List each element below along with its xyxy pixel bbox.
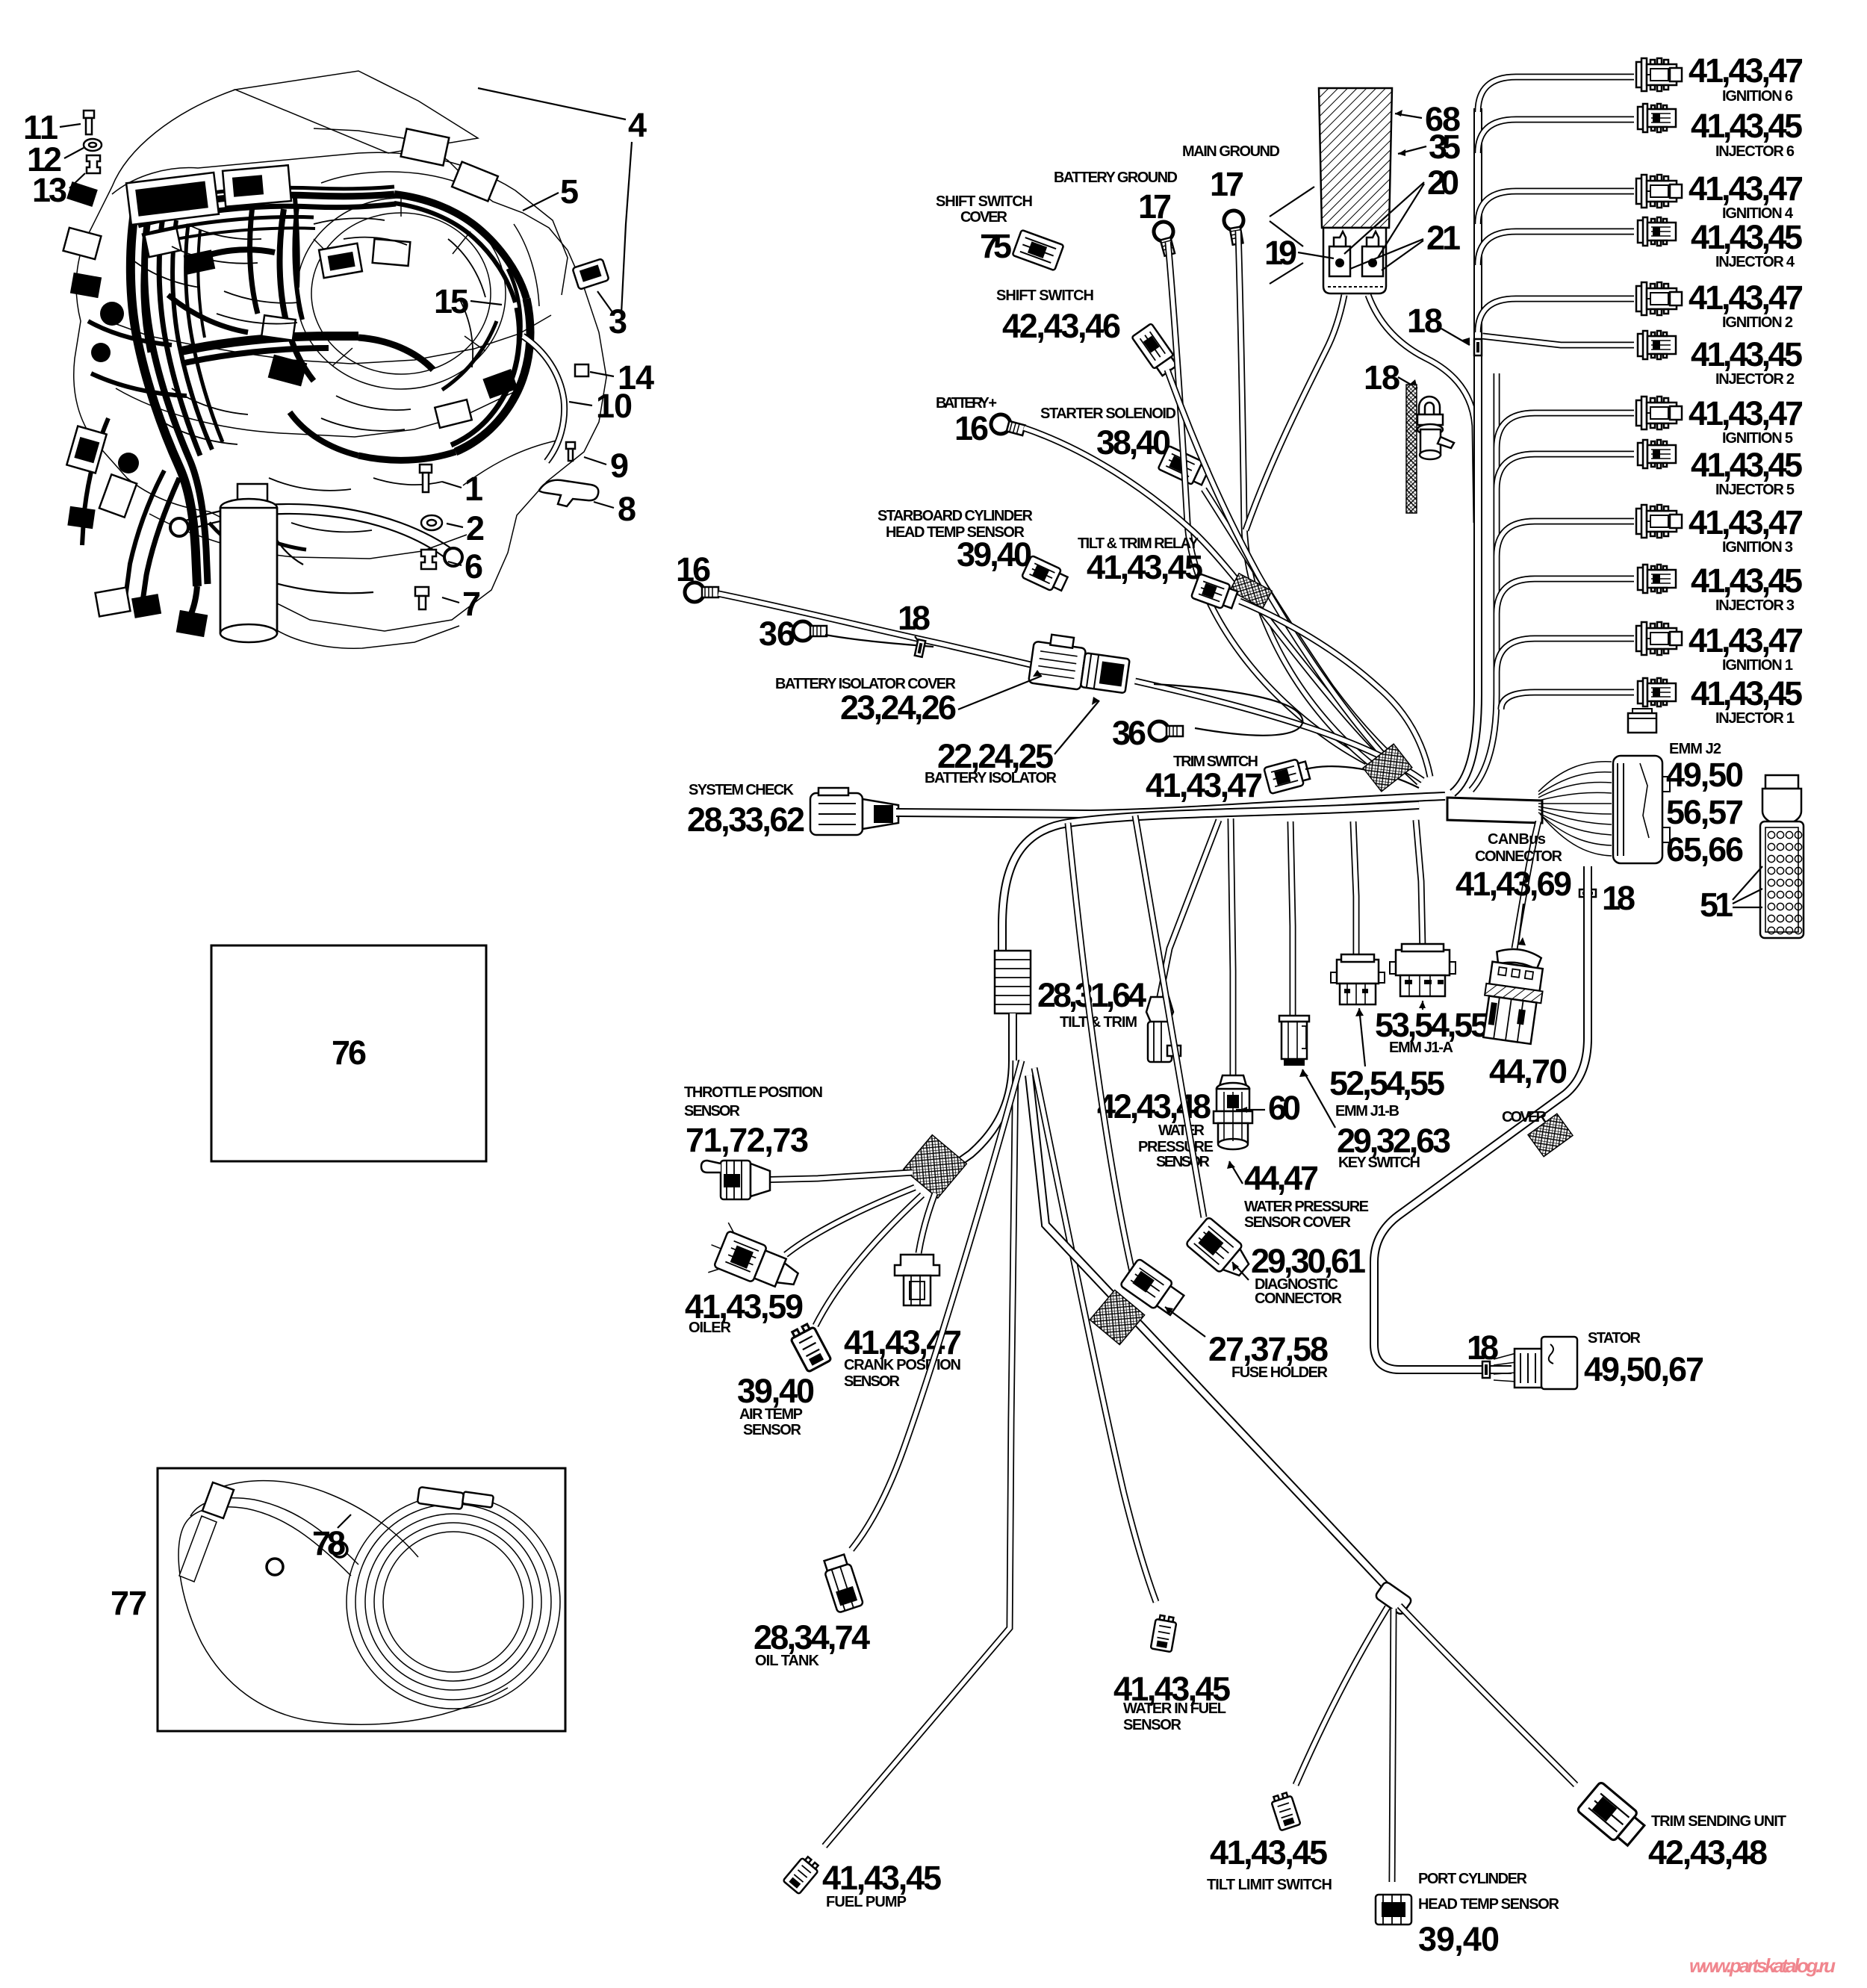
svg-text:41,43,45: 41,43,45 xyxy=(1691,562,1802,600)
svg-text:WATER IN FUEL: WATER IN FUEL xyxy=(1123,1700,1226,1717)
svg-text:PORT CYLINDER: PORT CYLINDER xyxy=(1418,1871,1528,1887)
svg-text:EMM J2: EMM J2 xyxy=(1669,741,1721,757)
svg-text:41,43,47: 41,43,47 xyxy=(1689,170,1803,208)
svg-text:28,33,62: 28,33,62 xyxy=(687,801,804,839)
svg-text:SYSTEM CHECK: SYSTEM CHECK xyxy=(689,782,795,798)
svg-text:42,43,48: 42,43,48 xyxy=(1648,1833,1767,1871)
svg-text:BATTERY ISOLATOR: BATTERY ISOLATOR xyxy=(925,770,1057,786)
svg-text:2: 2 xyxy=(466,509,484,547)
svg-text:9: 9 xyxy=(610,447,628,485)
svg-text:52,54,55: 52,54,55 xyxy=(1329,1064,1444,1102)
svg-text:INJECTOR 3: INJECTOR 3 xyxy=(1715,597,1795,614)
svg-text:17: 17 xyxy=(1138,187,1171,226)
svg-text:51: 51 xyxy=(1700,886,1733,924)
svg-text:8: 8 xyxy=(618,490,636,528)
svg-text:FUSE HOLDER: FUSE HOLDER xyxy=(1231,1364,1329,1381)
svg-text:44,70: 44,70 xyxy=(1489,1052,1567,1090)
svg-text:COVER: COVER xyxy=(960,209,1008,226)
svg-text:EMM J1-A: EMM J1-A xyxy=(1389,1040,1453,1056)
svg-text:13: 13 xyxy=(32,171,66,209)
svg-text:TILT LIMIT SWITCH: TILT LIMIT SWITCH xyxy=(1207,1877,1332,1893)
svg-text:www.partskatalog.ru: www.partskatalog.ru xyxy=(1689,1954,1836,1977)
svg-text:39,40: 39,40 xyxy=(957,535,1031,574)
svg-text:7: 7 xyxy=(462,585,480,623)
svg-text:KEY SWITCH: KEY SWITCH xyxy=(1338,1155,1420,1171)
svg-text:INJECTOR 2: INJECTOR 2 xyxy=(1715,371,1795,388)
svg-text:CONNECTOR: CONNECTOR xyxy=(1475,848,1563,865)
svg-text:IGNITION 2: IGNITION 2 xyxy=(1722,314,1793,331)
svg-text:FUEL PUMP: FUEL PUMP xyxy=(826,1894,907,1910)
svg-text:41,43,47: 41,43,47 xyxy=(1689,394,1803,432)
svg-text:53,54,55: 53,54,55 xyxy=(1375,1006,1488,1044)
svg-text:71,72,73: 71,72,73 xyxy=(686,1121,808,1159)
svg-text:36: 36 xyxy=(759,615,795,653)
svg-text:23,24,26: 23,24,26 xyxy=(840,689,956,727)
svg-text:41,43,45: 41,43,45 xyxy=(1691,335,1802,373)
svg-text:SENSOR: SENSOR xyxy=(1156,1154,1211,1170)
svg-text:SHIFT SWITCH: SHIFT SWITCH xyxy=(996,288,1094,304)
svg-text:56,57: 56,57 xyxy=(1666,793,1743,831)
svg-text:44,47: 44,47 xyxy=(1244,1159,1318,1197)
svg-text:5: 5 xyxy=(560,173,578,211)
svg-text:INJECTOR 6: INJECTOR 6 xyxy=(1715,143,1795,160)
svg-text:41,43,45: 41,43,45 xyxy=(1691,218,1802,256)
svg-text:10: 10 xyxy=(596,387,632,425)
svg-text:COVER: COVER xyxy=(1502,1109,1547,1125)
svg-text:18: 18 xyxy=(1407,302,1442,340)
svg-text:42,43,46: 42,43,46 xyxy=(1002,307,1120,345)
svg-text:THROTTLE POSITION: THROTTLE POSITION xyxy=(684,1084,823,1101)
svg-text:SENSOR: SENSOR xyxy=(743,1422,802,1438)
svg-text:41,43,45: 41,43,45 xyxy=(1210,1833,1327,1871)
svg-text:20: 20 xyxy=(1427,164,1459,202)
svg-text:CRANK POSITION: CRANK POSITION xyxy=(844,1357,961,1373)
svg-text:41,43,45: 41,43,45 xyxy=(1691,446,1802,484)
svg-text:6: 6 xyxy=(465,547,482,585)
svg-text:TRIM SENDING UNIT: TRIM SENDING UNIT xyxy=(1651,1813,1786,1830)
svg-text:29,30,61: 29,30,61 xyxy=(1251,1242,1365,1280)
svg-text:16: 16 xyxy=(954,409,988,447)
svg-text:18: 18 xyxy=(898,599,930,637)
svg-text:41,43,45: 41,43,45 xyxy=(1087,548,1202,586)
svg-text:15: 15 xyxy=(434,282,468,320)
svg-text:41,43,47: 41,43,47 xyxy=(1689,503,1803,541)
svg-text:41,43,47: 41,43,47 xyxy=(1689,621,1803,659)
svg-text:41,43,45: 41,43,45 xyxy=(1691,107,1802,145)
svg-text:OILER: OILER xyxy=(689,1320,732,1336)
svg-text:STARBOARD CYLINDER: STARBOARD CYLINDER xyxy=(877,508,1034,524)
svg-text:SENSOR: SENSOR xyxy=(1123,1717,1182,1733)
svg-text:IGNITION 3: IGNITION 3 xyxy=(1722,539,1793,556)
svg-text:41,43,47: 41,43,47 xyxy=(1689,52,1803,90)
svg-text:78: 78 xyxy=(312,1524,345,1562)
svg-text:IGNITION 5: IGNITION 5 xyxy=(1722,430,1793,447)
svg-text:19: 19 xyxy=(1264,234,1296,272)
svg-text:SENSOR COVER: SENSOR COVER xyxy=(1244,1214,1352,1231)
svg-text:STARTER SOLENOID: STARTER SOLENOID xyxy=(1040,406,1176,422)
svg-text:42,43,48: 42,43,48 xyxy=(1097,1087,1211,1125)
svg-text:27,37,58: 27,37,58 xyxy=(1208,1330,1328,1368)
svg-text:4: 4 xyxy=(628,106,647,144)
svg-text:41,43,45: 41,43,45 xyxy=(822,1859,941,1897)
svg-text:IGNITION 6: IGNITION 6 xyxy=(1722,88,1793,105)
svg-text:65,66: 65,66 xyxy=(1666,830,1743,869)
svg-text:39,40: 39,40 xyxy=(737,1372,814,1410)
svg-text:41,43,47: 41,43,47 xyxy=(1146,766,1262,804)
svg-text:39,40: 39,40 xyxy=(1418,1920,1499,1958)
svg-text:SHIFT SWITCH: SHIFT SWITCH xyxy=(936,193,1033,210)
svg-text:AIR TEMP: AIR TEMP xyxy=(739,1406,803,1423)
svg-text:OIL TANK: OIL TANK xyxy=(755,1653,820,1669)
svg-text:STATOR: STATOR xyxy=(1588,1330,1641,1346)
svg-text:SENSOR: SENSOR xyxy=(684,1103,741,1119)
svg-text:49,50: 49,50 xyxy=(1666,756,1743,794)
svg-text:EMM J1-B: EMM J1-B xyxy=(1335,1103,1400,1119)
svg-text:INJECTOR 4: INJECTOR 4 xyxy=(1715,254,1795,270)
svg-text:49,50,67: 49,50,67 xyxy=(1584,1350,1703,1388)
svg-text:IGNITION 1: IGNITION 1 xyxy=(1722,657,1793,674)
svg-text:HEAD TEMP SENSOR: HEAD TEMP SENSOR xyxy=(1418,1896,1560,1913)
svg-text:WATER: WATER xyxy=(1158,1122,1205,1139)
svg-text:1: 1 xyxy=(465,470,482,508)
svg-text:18: 18 xyxy=(1364,358,1400,397)
svg-text:36: 36 xyxy=(1112,714,1146,752)
svg-text:CANBus: CANBus xyxy=(1488,831,1546,848)
svg-text:INJECTOR 5: INJECTOR 5 xyxy=(1715,482,1795,498)
svg-text:17: 17 xyxy=(1210,165,1243,203)
svg-text:CONNECTOR: CONNECTOR xyxy=(1255,1290,1343,1307)
svg-text:77: 77 xyxy=(111,1584,146,1622)
svg-text:PRESSURE: PRESSURE xyxy=(1138,1139,1214,1155)
svg-text:3: 3 xyxy=(609,302,627,341)
svg-text:60: 60 xyxy=(1268,1089,1300,1127)
svg-text:18: 18 xyxy=(1602,879,1635,917)
svg-text:41,43,47: 41,43,47 xyxy=(1689,279,1803,317)
svg-text:28,34,74: 28,34,74 xyxy=(754,1618,870,1656)
svg-text:BATTERY GROUND: BATTERY GROUND xyxy=(1054,170,1178,186)
svg-text:38,40: 38,40 xyxy=(1096,423,1170,462)
svg-text:41,43,45: 41,43,45 xyxy=(1691,674,1802,712)
svg-text:76: 76 xyxy=(332,1034,366,1072)
svg-text:35: 35 xyxy=(1429,128,1460,166)
svg-text:SENSOR: SENSOR xyxy=(844,1373,901,1390)
svg-text:WATER PRESSURE: WATER PRESSURE xyxy=(1244,1199,1369,1215)
svg-text:INJECTOR 1: INJECTOR 1 xyxy=(1715,710,1795,727)
svg-text:41,43,69: 41,43,69 xyxy=(1456,865,1571,903)
svg-text:MAIN GROUND: MAIN GROUND xyxy=(1182,143,1280,160)
svg-text:TILT & TRIM: TILT & TRIM xyxy=(1060,1014,1137,1031)
svg-text:75: 75 xyxy=(980,227,1011,265)
svg-text:21: 21 xyxy=(1426,219,1460,257)
